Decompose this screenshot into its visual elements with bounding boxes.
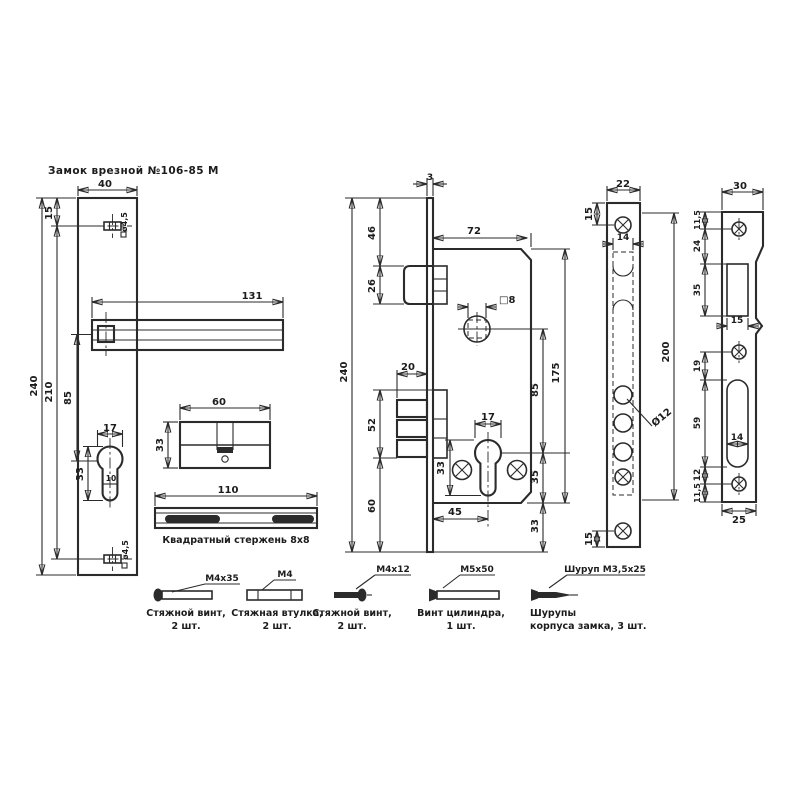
dim-keyhole-width: 17 [103,423,117,434]
dim-spindle-square: □8 [499,295,515,306]
hardware-label-1: M4x35 [205,574,239,584]
dim-top-screw-offset: 15 [584,207,595,221]
dim-body-height: 175 [551,363,562,384]
dim-strike-bottom-margin: 11,5 [693,483,702,503]
dim-faceplate-width: 22 [616,179,630,190]
dim-holes-span: 210 [44,382,55,403]
body-screw-hole-right [508,461,527,480]
short-screw-icon [334,592,360,598]
drawing-title: Замок врезной №106-85 М [48,165,219,177]
dim-cylinder-height: 33 [155,438,166,452]
dim-top-hole-dia: ø4,5 [120,212,129,232]
lock-body-view: □8 3 72 240 [339,173,570,552]
square-rod-view: 110 Квадратный стержень 8x8 [155,485,317,546]
dim-top-hole-offset: 15 [44,206,55,220]
faceplate-dimensions: 22 15 15 14 200 [584,179,679,547]
dim-bolt-block-height: 52 [367,418,378,432]
faceplate-screw-bottom [615,523,631,539]
hardware-name-5: Шурупы [530,608,576,619]
faceplate-hole-3 [614,443,632,461]
strike-plate-view: 30 25 15 14 [693,181,763,526]
hardware-qty-1: 2 шт. [171,621,200,632]
latch-window-bottom-arc [613,300,633,310]
dim-body-cyl-height: 33 [436,461,447,475]
faceplate-screw-top [615,217,631,233]
dim-cylinder-length: 60 [212,397,226,408]
dim-latch-opening-height: 35 [693,284,703,297]
hardware-item-5: Шуруп М3,5x25 Шурупы корпуса замка, 3 шт… [530,565,646,632]
dim-body-depth: 72 [467,226,481,237]
strike-screw-2 [732,341,746,363]
dim-faceplate-length: 200 [661,342,672,363]
hardware-name-3: Стяжной винт, [312,608,391,619]
dim-body-cyl-width: 17 [481,412,495,423]
latch-bolt [404,266,447,304]
dim-backset: 45 [448,507,462,518]
faceplate-hole-2 [614,414,632,432]
strike-latch-opening [727,264,748,316]
dim-hole-dia: Ø12 [649,406,674,430]
dim-strike-width-top: 30 [733,181,747,192]
hardware-qty-2: 2 шт. [262,621,291,632]
hardware-qty-3: 2 шт. [337,621,366,632]
dim-bottom-screw-offset: 15 [584,532,595,546]
dim-plate-height: 240 [29,376,40,397]
wood-screw-icon [531,589,538,601]
strike-bolt-slot [727,380,748,467]
dim-handle-to-cylinder: 85 [63,391,74,405]
hardware-label-5: Шуруп М3,5x25 [564,565,646,575]
hardware-item-2: M4 Стяжная втулка, 2 шт. [231,570,323,632]
dim-slot-to-screw: 12 [693,469,703,482]
hardware-qty-4: 1 шт. [446,621,475,632]
dim-top-to-latch: 46 [367,226,378,240]
dim-body-bottom-margin: 33 [530,519,541,533]
strike-screw-3 [732,473,746,495]
hardware-item-1: M4x35 Стяжной винт, 2 шт. [146,574,240,632]
lock-technical-drawing: Замок врезной №106-85 М ø4,5 ø4,5 [0,0,800,800]
cylinder-cam [217,447,233,453]
latch-window-top-arc [613,266,633,276]
rod-caption: Квадратный стержень 8x8 [162,535,310,546]
dim-keyhole-height: 33 [75,467,86,481]
dim-screw-to-slot: 19 [693,360,703,373]
dim-bolt-to-bottom: 60 [367,499,378,513]
deadbolt [397,390,447,458]
faceplate-screw-mid [615,469,631,485]
hardware-qty-5: корпуса замка, 3 шт. [530,621,646,632]
rod-knurl-left [165,515,220,523]
hardware-name-2: Стяжная втулка, [231,608,323,619]
hardware-label-3: M4x12 [376,565,410,575]
hardware-label-4: M5x50 [460,565,494,575]
cylinder-screw-icon [429,589,437,602]
dim-screw-to-latch: 24 [693,240,703,253]
strike-plate-outline [722,212,763,502]
lock-body-dimensions: 3 72 240 46 26 52 60 20 [339,173,570,552]
rod-knurl-right [272,515,314,523]
screw-head-icon [154,589,163,602]
hardware-item-3: M4x12 Стяжной винт, 2 шт. [312,565,411,632]
dim-strike-slot-width: 14 [731,433,744,443]
dim-cyl-to-body-bottom: 35 [530,470,541,484]
dim-faceplate-thickness: 3 [427,173,433,183]
hardware-name-1: Стяжной винт, [146,608,225,619]
dim-plate-width: 40 [98,179,112,190]
dim-strike-top-margin: 11,5 [693,210,702,230]
dim-keyhole-narrow: 10 [106,474,116,483]
strike-plate-dimensions: 30 25 15 14 [693,181,763,526]
hardware-label-2: M4 [277,570,292,580]
body-screw-hole-left [453,461,472,480]
hardware-item-4: M5x50 Винт цилиндра, 1 шт. [417,565,505,632]
faceplate-edge [427,198,433,552]
hardware-name-4: Винт цилиндра, [417,608,505,619]
dim-bottom-hole-dia: ø4,5 [121,540,130,560]
cylinder-view: 60 33 [155,397,270,468]
dim-slot-height: 59 [693,417,703,430]
strike-screw-1 [732,218,746,240]
dim-rod-length: 110 [218,485,239,496]
dim-latch-height: 26 [367,279,378,293]
dim-body-view-height: 240 [339,362,350,383]
dim-bolt-width: 20 [401,362,415,373]
lever-handle [92,312,283,356]
sleeve-icon [247,590,302,600]
dim-axis-distance: 85 [530,383,541,397]
spindle-hole [458,312,548,346]
dim-strike-width-bottom: 25 [732,515,746,526]
dim-slot-width: 14 [617,233,630,243]
dim-latch-opening-width: 15 [731,316,744,326]
dim-handle-length: 131 [242,291,263,302]
faceplate-view: Ø12 22 15 15 14 200 [584,179,679,547]
hardware-items: M4x35 Стяжной винт, 2 шт. M4 Стяжная вту… [146,565,646,632]
